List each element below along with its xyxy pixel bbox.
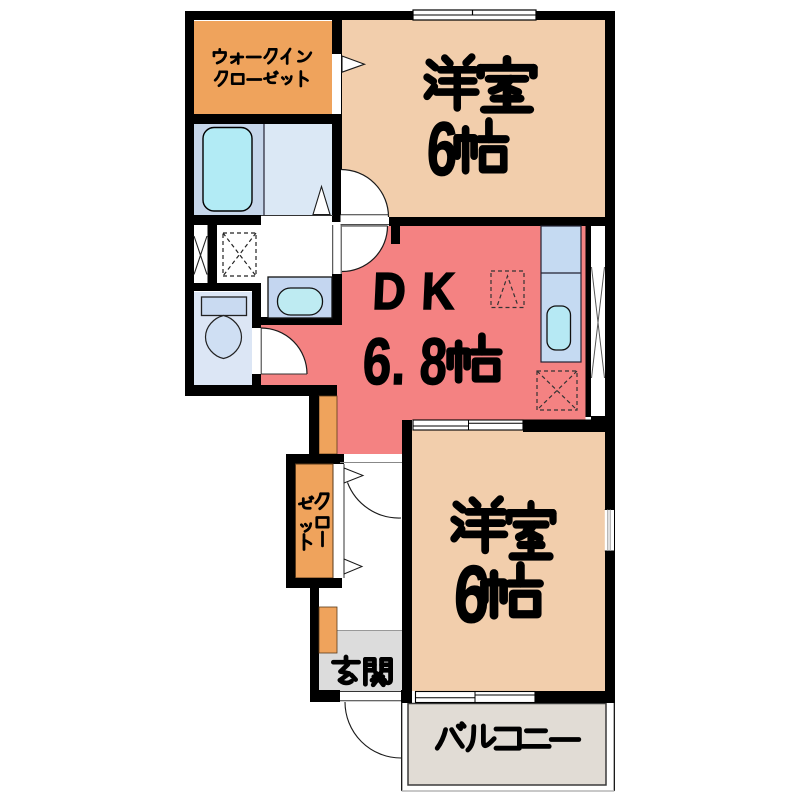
svg-text:6.: 6. (361, 324, 407, 399)
svg-text:6: 6 (452, 550, 491, 640)
svg-text:8: 8 (418, 325, 448, 399)
svg-text:DK: DK (371, 263, 471, 320)
svg-text:6: 6 (425, 107, 459, 192)
